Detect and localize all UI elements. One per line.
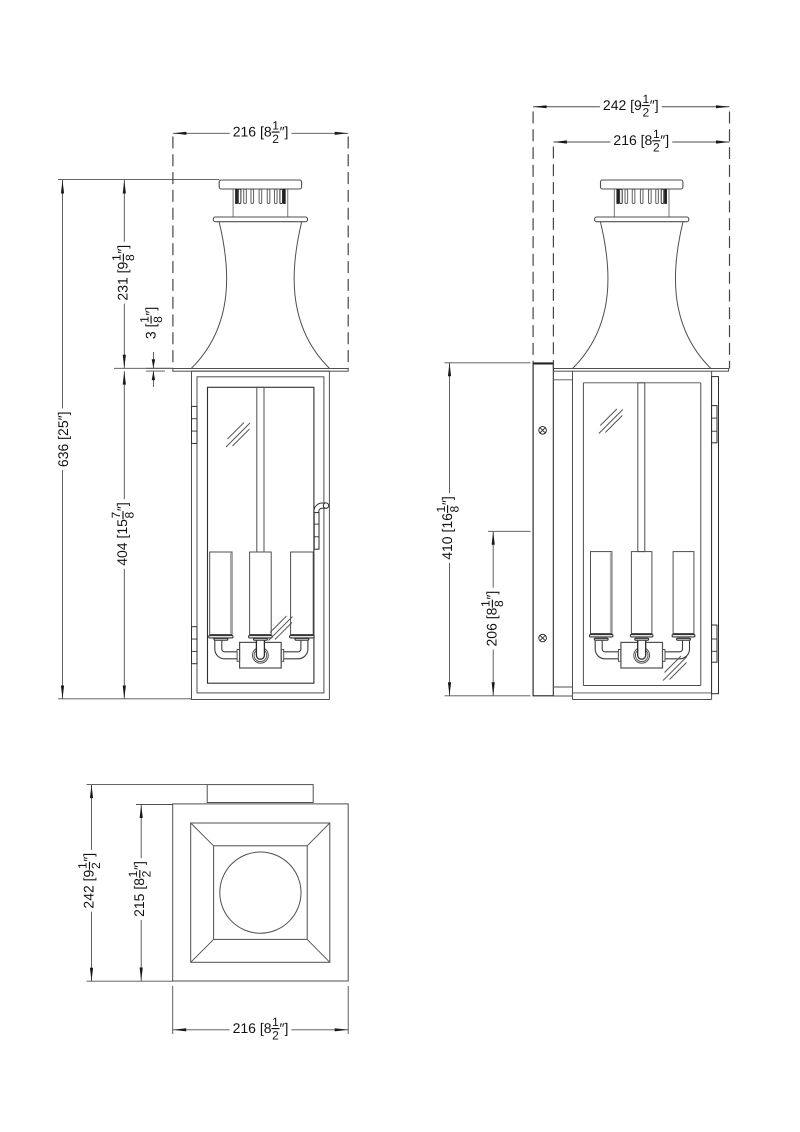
svg-text:″]: ″] bbox=[439, 496, 455, 505]
svg-text:2: 2 bbox=[272, 132, 279, 146]
svg-text:2: 2 bbox=[653, 141, 660, 155]
svg-text:2: 2 bbox=[89, 862, 103, 869]
svg-text:216 [8: 216 [8 bbox=[233, 1020, 272, 1036]
svg-text:215 [8: 215 [8 bbox=[131, 878, 147, 917]
svg-text:1: 1 bbox=[272, 118, 279, 132]
svg-text:206 [8: 206 [8 bbox=[484, 607, 500, 646]
svg-text:″]: ″] bbox=[660, 132, 669, 148]
svg-text:″]: ″] bbox=[650, 97, 659, 113]
svg-text:″]: ″] bbox=[484, 591, 500, 600]
svg-text:″]: ″] bbox=[114, 502, 130, 511]
svg-text:242 [9: 242 [9 bbox=[603, 97, 642, 113]
svg-text:8: 8 bbox=[123, 254, 137, 261]
svg-text:2: 2 bbox=[642, 105, 649, 119]
svg-text:1: 1 bbox=[642, 92, 649, 106]
svg-text:1: 1 bbox=[434, 505, 448, 512]
svg-text:″]: ″] bbox=[131, 861, 147, 870]
svg-text:8: 8 bbox=[447, 505, 461, 512]
svg-text:7: 7 bbox=[109, 511, 123, 518]
svg-text:410 [16: 410 [16 bbox=[439, 513, 455, 560]
svg-text:636 [25″]: 636 [25″] bbox=[55, 412, 71, 468]
svg-text:8: 8 bbox=[151, 316, 165, 323]
svg-text:1: 1 bbox=[126, 870, 140, 877]
svg-text:8: 8 bbox=[123, 511, 137, 518]
svg-text:2: 2 bbox=[272, 1028, 279, 1042]
svg-text:216 [8: 216 [8 bbox=[233, 123, 272, 139]
svg-text:″]: ″] bbox=[280, 123, 289, 139]
svg-text:404 [15: 404 [15 bbox=[114, 519, 130, 566]
svg-text:231 [9: 231 [9 bbox=[115, 261, 131, 300]
svg-text:″]: ″] bbox=[81, 853, 97, 862]
svg-text:1: 1 bbox=[479, 600, 493, 607]
svg-text:1: 1 bbox=[76, 862, 90, 869]
svg-text:″]: ″] bbox=[280, 1020, 289, 1036]
svg-text:2: 2 bbox=[140, 870, 154, 877]
svg-text:8: 8 bbox=[492, 600, 506, 607]
svg-text:1: 1 bbox=[272, 1015, 279, 1029]
svg-text:242 [9: 242 [9 bbox=[81, 869, 97, 908]
svg-text:1: 1 bbox=[110, 254, 124, 261]
svg-text:1: 1 bbox=[653, 127, 660, 141]
svg-text:″]: ″] bbox=[142, 307, 158, 316]
svg-text:1: 1 bbox=[137, 316, 151, 323]
svg-text:216 [8: 216 [8 bbox=[613, 132, 652, 148]
svg-text:″]: ″] bbox=[115, 245, 131, 254]
svg-text:3 [: 3 [ bbox=[142, 323, 158, 339]
